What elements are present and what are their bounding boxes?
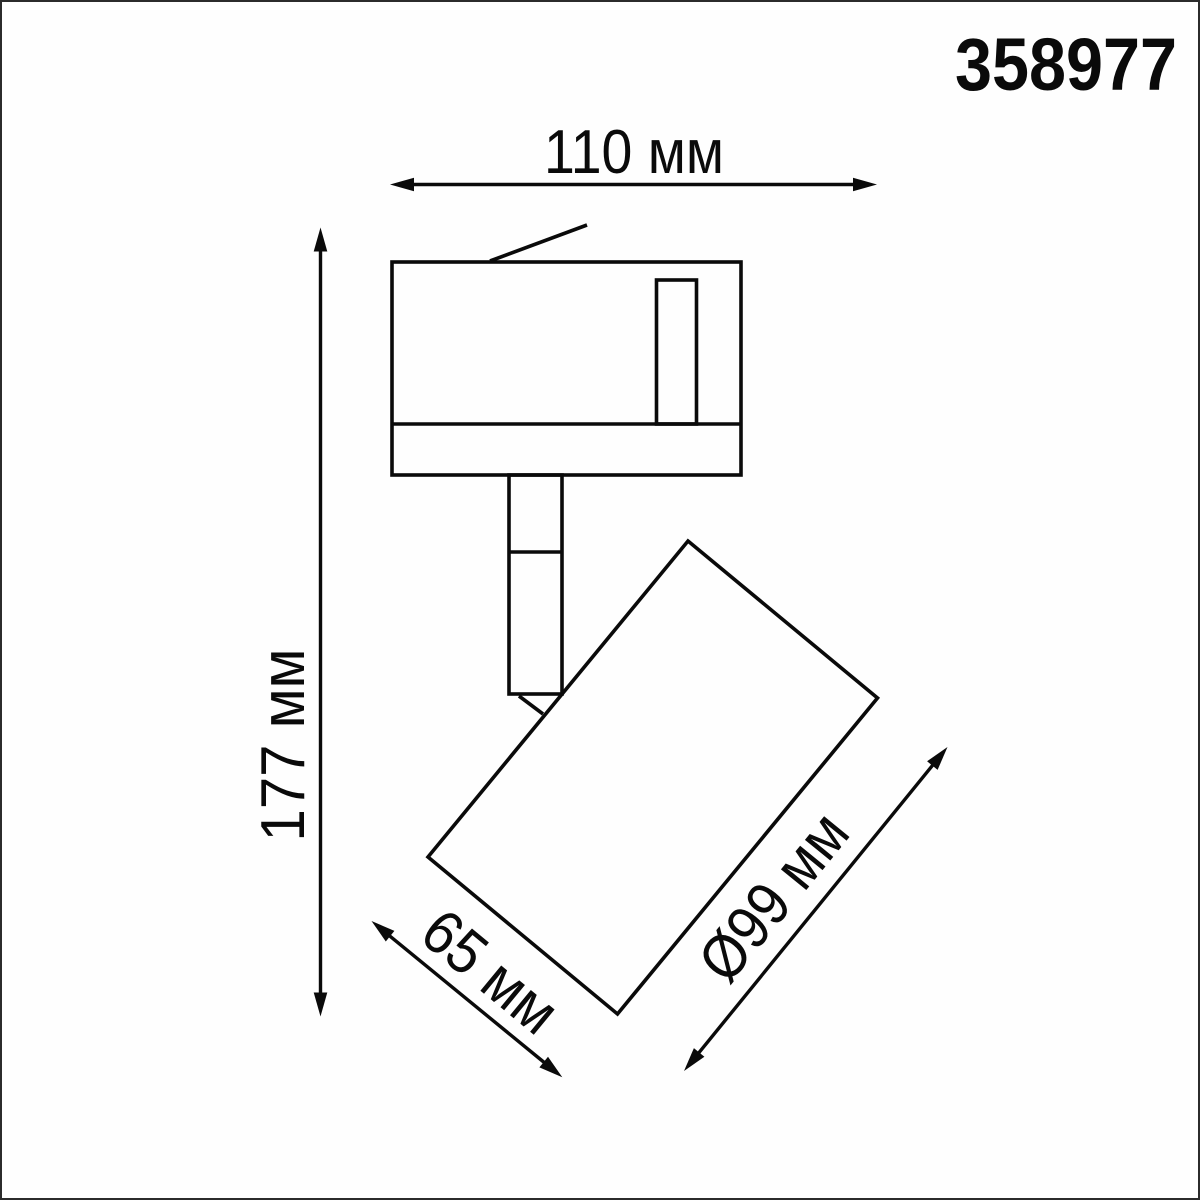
svg-text:358977: 358977 (955, 23, 1177, 106)
svg-text:110 мм: 110 мм (544, 118, 724, 187)
svg-text:177 мм: 177 мм (249, 649, 318, 842)
